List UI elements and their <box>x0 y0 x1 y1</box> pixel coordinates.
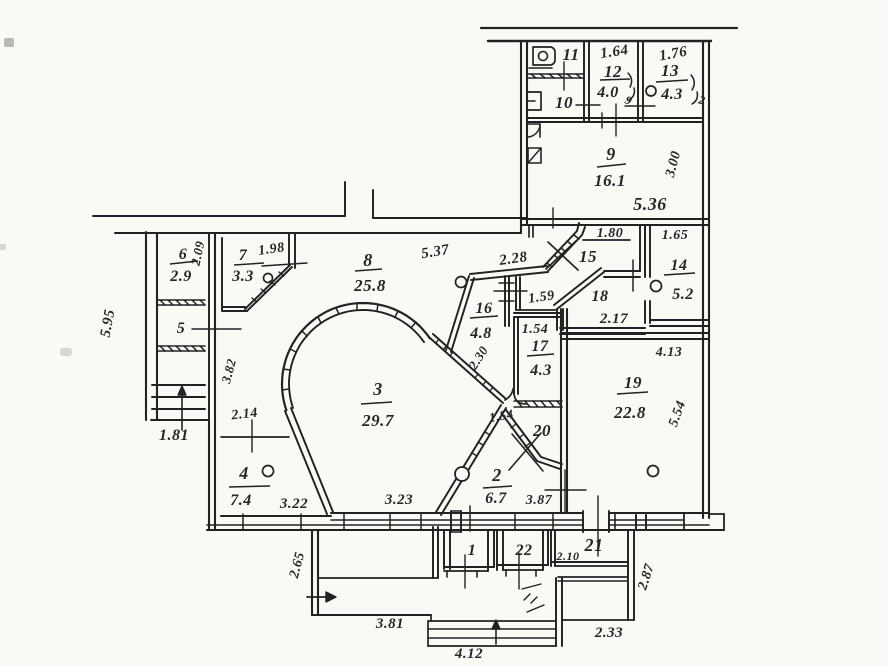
svg-text:11: 11 <box>562 45 579 64</box>
svg-text:1.80: 1.80 <box>597 226 624 241</box>
svg-text:3.81: 3.81 <box>375 616 404 632</box>
svg-text:2.9: 2.9 <box>169 268 192 285</box>
svg-text:15: 15 <box>579 247 597 266</box>
svg-text:21: 21 <box>584 535 604 555</box>
svg-text:3: 3 <box>372 379 383 399</box>
svg-text:3.3: 3.3 <box>231 268 254 285</box>
svg-text:4.3: 4.3 <box>660 86 683 103</box>
svg-text:2.33: 2.33 <box>594 625 623 641</box>
svg-text:7.4: 7.4 <box>230 492 252 509</box>
svg-text:1.81: 1.81 <box>159 427 189 444</box>
svg-text:2.17: 2.17 <box>599 311 628 327</box>
svg-text:20: 20 <box>532 421 551 440</box>
svg-text:6.7: 6.7 <box>485 490 507 507</box>
svg-text:5.2: 5.2 <box>672 286 694 303</box>
svg-text:22: 22 <box>515 542 533 559</box>
svg-text:4.12: 4.12 <box>454 646 483 662</box>
svg-text:1.65: 1.65 <box>662 228 689 243</box>
svg-text:13: 13 <box>661 61 679 80</box>
svg-text:3.23: 3.23 <box>384 492 413 508</box>
svg-text:4.13: 4.13 <box>655 345 683 360</box>
svg-text:18: 18 <box>592 288 609 305</box>
svg-text:17: 17 <box>532 338 550 355</box>
svg-text:3.22: 3.22 <box>279 496 308 512</box>
svg-text:7: 7 <box>239 247 248 264</box>
svg-text:6: 6 <box>179 246 188 263</box>
svg-text:14: 14 <box>671 257 688 274</box>
svg-text:22.8: 22.8 <box>613 403 646 422</box>
svg-text:4: 4 <box>238 463 249 483</box>
svg-text:19: 19 <box>624 373 642 392</box>
svg-text:9: 9 <box>606 144 616 164</box>
svg-text:12: 12 <box>604 62 622 81</box>
svg-text:2.14: 2.14 <box>230 406 259 424</box>
svg-text:16: 16 <box>476 300 493 317</box>
svg-text:29.7: 29.7 <box>361 411 395 430</box>
svg-text:2: 2 <box>491 465 502 485</box>
svg-text:16.1: 16.1 <box>594 171 626 190</box>
svg-text:5.36: 5.36 <box>633 194 667 214</box>
svg-text:4.8: 4.8 <box>469 325 492 342</box>
svg-text:2.10: 2.10 <box>556 549 580 563</box>
svg-text:1.54: 1.54 <box>522 322 549 337</box>
svg-text:4.3: 4.3 <box>529 362 552 379</box>
svg-text:5: 5 <box>177 320 186 337</box>
svg-text:3.87: 3.87 <box>525 493 553 508</box>
svg-text:4.0: 4.0 <box>596 84 619 101</box>
svg-text:25.8: 25.8 <box>353 276 386 295</box>
svg-text:10: 10 <box>555 93 573 112</box>
svg-text:1: 1 <box>468 542 477 559</box>
svg-text:8: 8 <box>363 250 373 270</box>
